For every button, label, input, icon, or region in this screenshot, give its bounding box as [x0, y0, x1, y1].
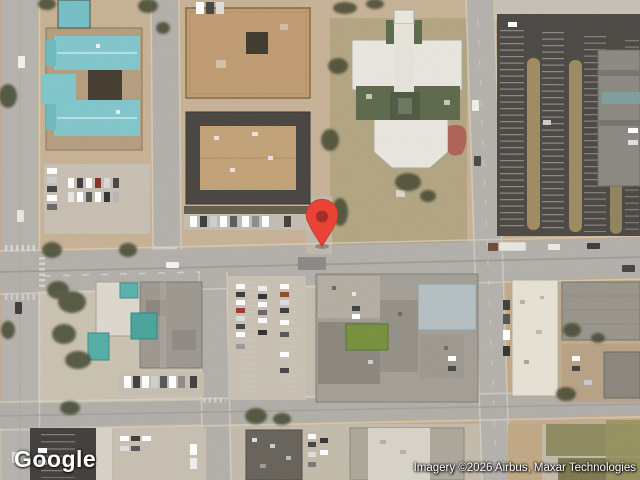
satellite-imagery — [0, 0, 640, 480]
pin-dot — [316, 211, 328, 223]
map-viewport[interactable]: Google Imagery ©2026 Airbus, Maxar Techn… — [0, 0, 640, 480]
google-logo[interactable]: Google — [14, 446, 96, 473]
map-attribution: Imagery ©2026 Airbus, Maxar Technologies — [414, 462, 636, 474]
